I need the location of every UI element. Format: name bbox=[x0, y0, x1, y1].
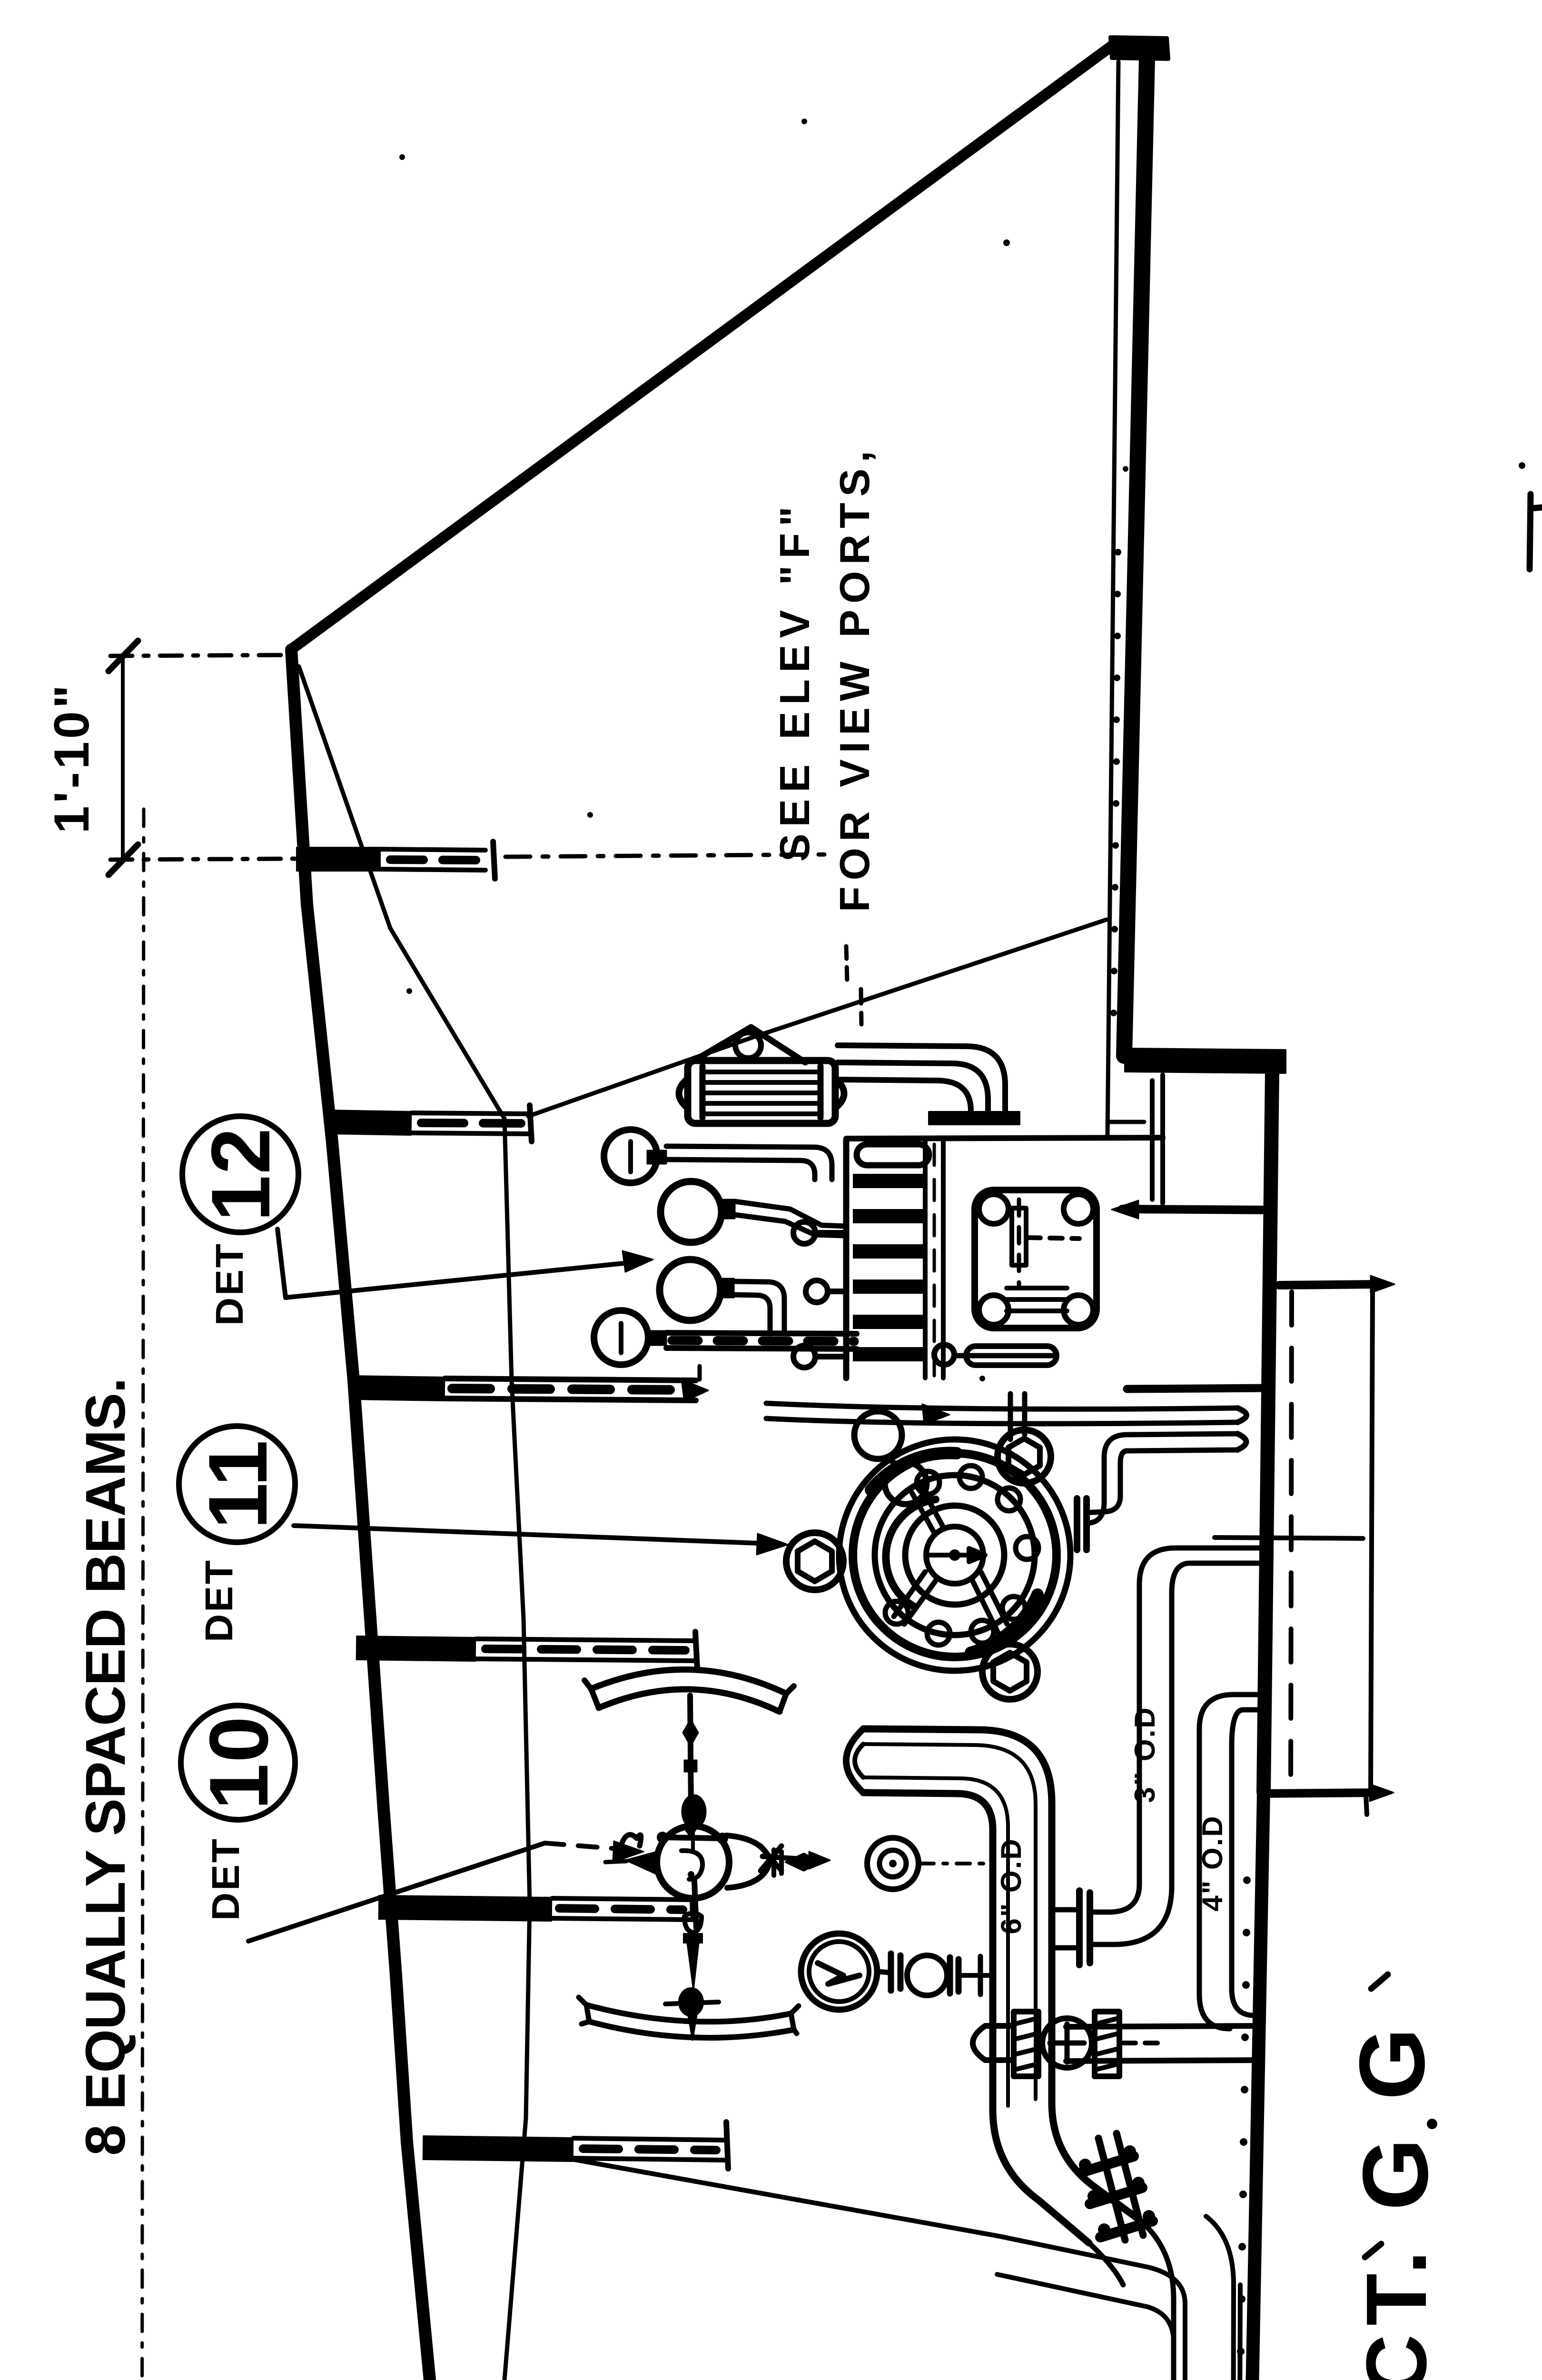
svg-text:8 EQUALLY SPACED BEAMS.: 8 EQUALLY SPACED BEAMS. bbox=[74, 1378, 137, 2156]
svg-text:SECT.: SECT. bbox=[1349, 2242, 1444, 2380]
svg-text:FOR VIEW PORTS,: FOR VIEW PORTS, bbox=[831, 445, 878, 912]
svg-text:11: 11 bbox=[192, 1439, 285, 1529]
svg-text:DET: DET bbox=[204, 1837, 247, 1921]
svg-text:4" O.D: 4" O.D bbox=[1196, 1815, 1228, 1911]
svg-text:12: 12 bbox=[195, 1127, 287, 1222]
svg-text:DET: DET bbox=[208, 1242, 251, 1326]
svg-text:1'-10": 1'-10" bbox=[44, 682, 99, 833]
svg-text:SEE ELEV "F": SEE ELEV "F" bbox=[771, 500, 818, 862]
svg-text:3" O.D: 3" O.D bbox=[1129, 1706, 1161, 1803]
svg-text:6" O.D: 6" O.D bbox=[995, 1837, 1027, 1934]
svg-text:G: G bbox=[1344, 2138, 1447, 2211]
svg-text:G: G bbox=[1340, 2028, 1444, 2100]
svg-text:DET: DET bbox=[198, 1558, 241, 1642]
svg-text:10: 10 bbox=[193, 1716, 286, 1810]
